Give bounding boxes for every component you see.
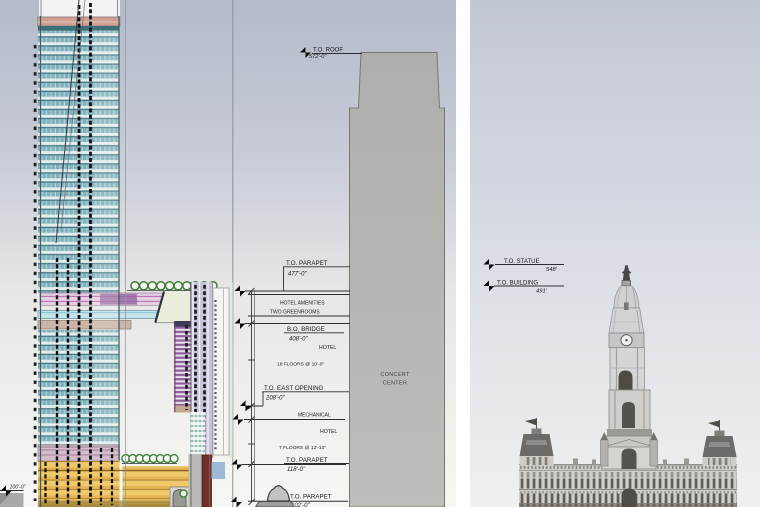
svg-text:B.O. BRIDGE: B.O. BRIDGE (287, 326, 325, 333)
svg-text:T.O. ROOF: T.O. ROOF (313, 48, 343, 54)
svg-text:MECHANICAL: MECHANICAL (298, 413, 331, 419)
svg-text:477'-0": 477'-0" (288, 272, 307, 278)
svg-text:572'-0": 572'-0" (309, 54, 327, 60)
svg-text:118'-0": 118'-0" (287, 467, 306, 473)
svg-text:CONCERT: CONCERT (380, 372, 410, 378)
svg-text:T.O. EAST OPENING: T.O. EAST OPENING (264, 385, 324, 392)
svg-text:T.O. PARAPET: T.O. PARAPET (290, 494, 332, 501)
svg-text:T.O. PARAPET: T.O. PARAPET (286, 260, 328, 267)
svg-text:HOTEL: HOTEL (319, 345, 336, 351)
svg-text:548': 548' (546, 267, 558, 273)
svg-text:T.O. PARAPET: T.O. PARAPET (286, 457, 328, 464)
svg-text:18 FLOORS @ 10'-0": 18 FLOORS @ 10'-0" (277, 362, 324, 368)
svg-text:491': 491' (536, 289, 548, 295)
svg-text:208'-0": 208'-0" (265, 396, 285, 402)
svg-text:408'-0": 408'-0" (289, 337, 308, 343)
svg-text:100'-0": 100'-0" (10, 485, 27, 491)
svg-text:HOTEL AMENITIES: HOTEL AMENITIES (280, 301, 325, 307)
svg-text:HOTEL: HOTEL (320, 429, 337, 435)
svg-text:7 FLOORS @ 12'-10": 7 FLOORS @ 12'-10" (279, 445, 326, 451)
svg-text:CENTER: CENTER (383, 381, 408, 387)
svg-text:TWO GREENROOMS: TWO GREENROOMS (270, 310, 320, 316)
